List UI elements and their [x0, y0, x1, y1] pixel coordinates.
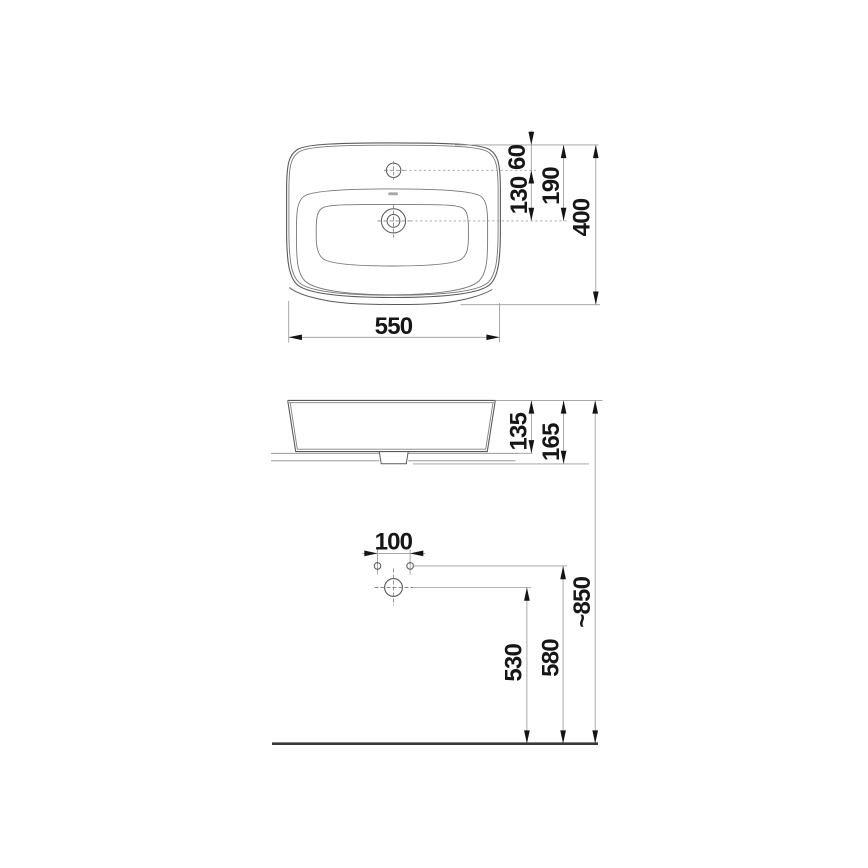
svg-text:100: 100: [375, 528, 413, 555]
svg-text:400: 400: [568, 198, 595, 236]
svg-text:580: 580: [537, 639, 564, 677]
svg-text:60: 60: [504, 144, 531, 170]
svg-text:550: 550: [375, 313, 413, 340]
svg-text:190: 190: [538, 167, 565, 205]
svg-text:530: 530: [501, 644, 528, 682]
svg-text:135: 135: [505, 412, 532, 450]
svg-text:130: 130: [506, 176, 533, 214]
svg-text:~850: ~850: [569, 576, 596, 627]
svg-text:165: 165: [538, 423, 565, 461]
